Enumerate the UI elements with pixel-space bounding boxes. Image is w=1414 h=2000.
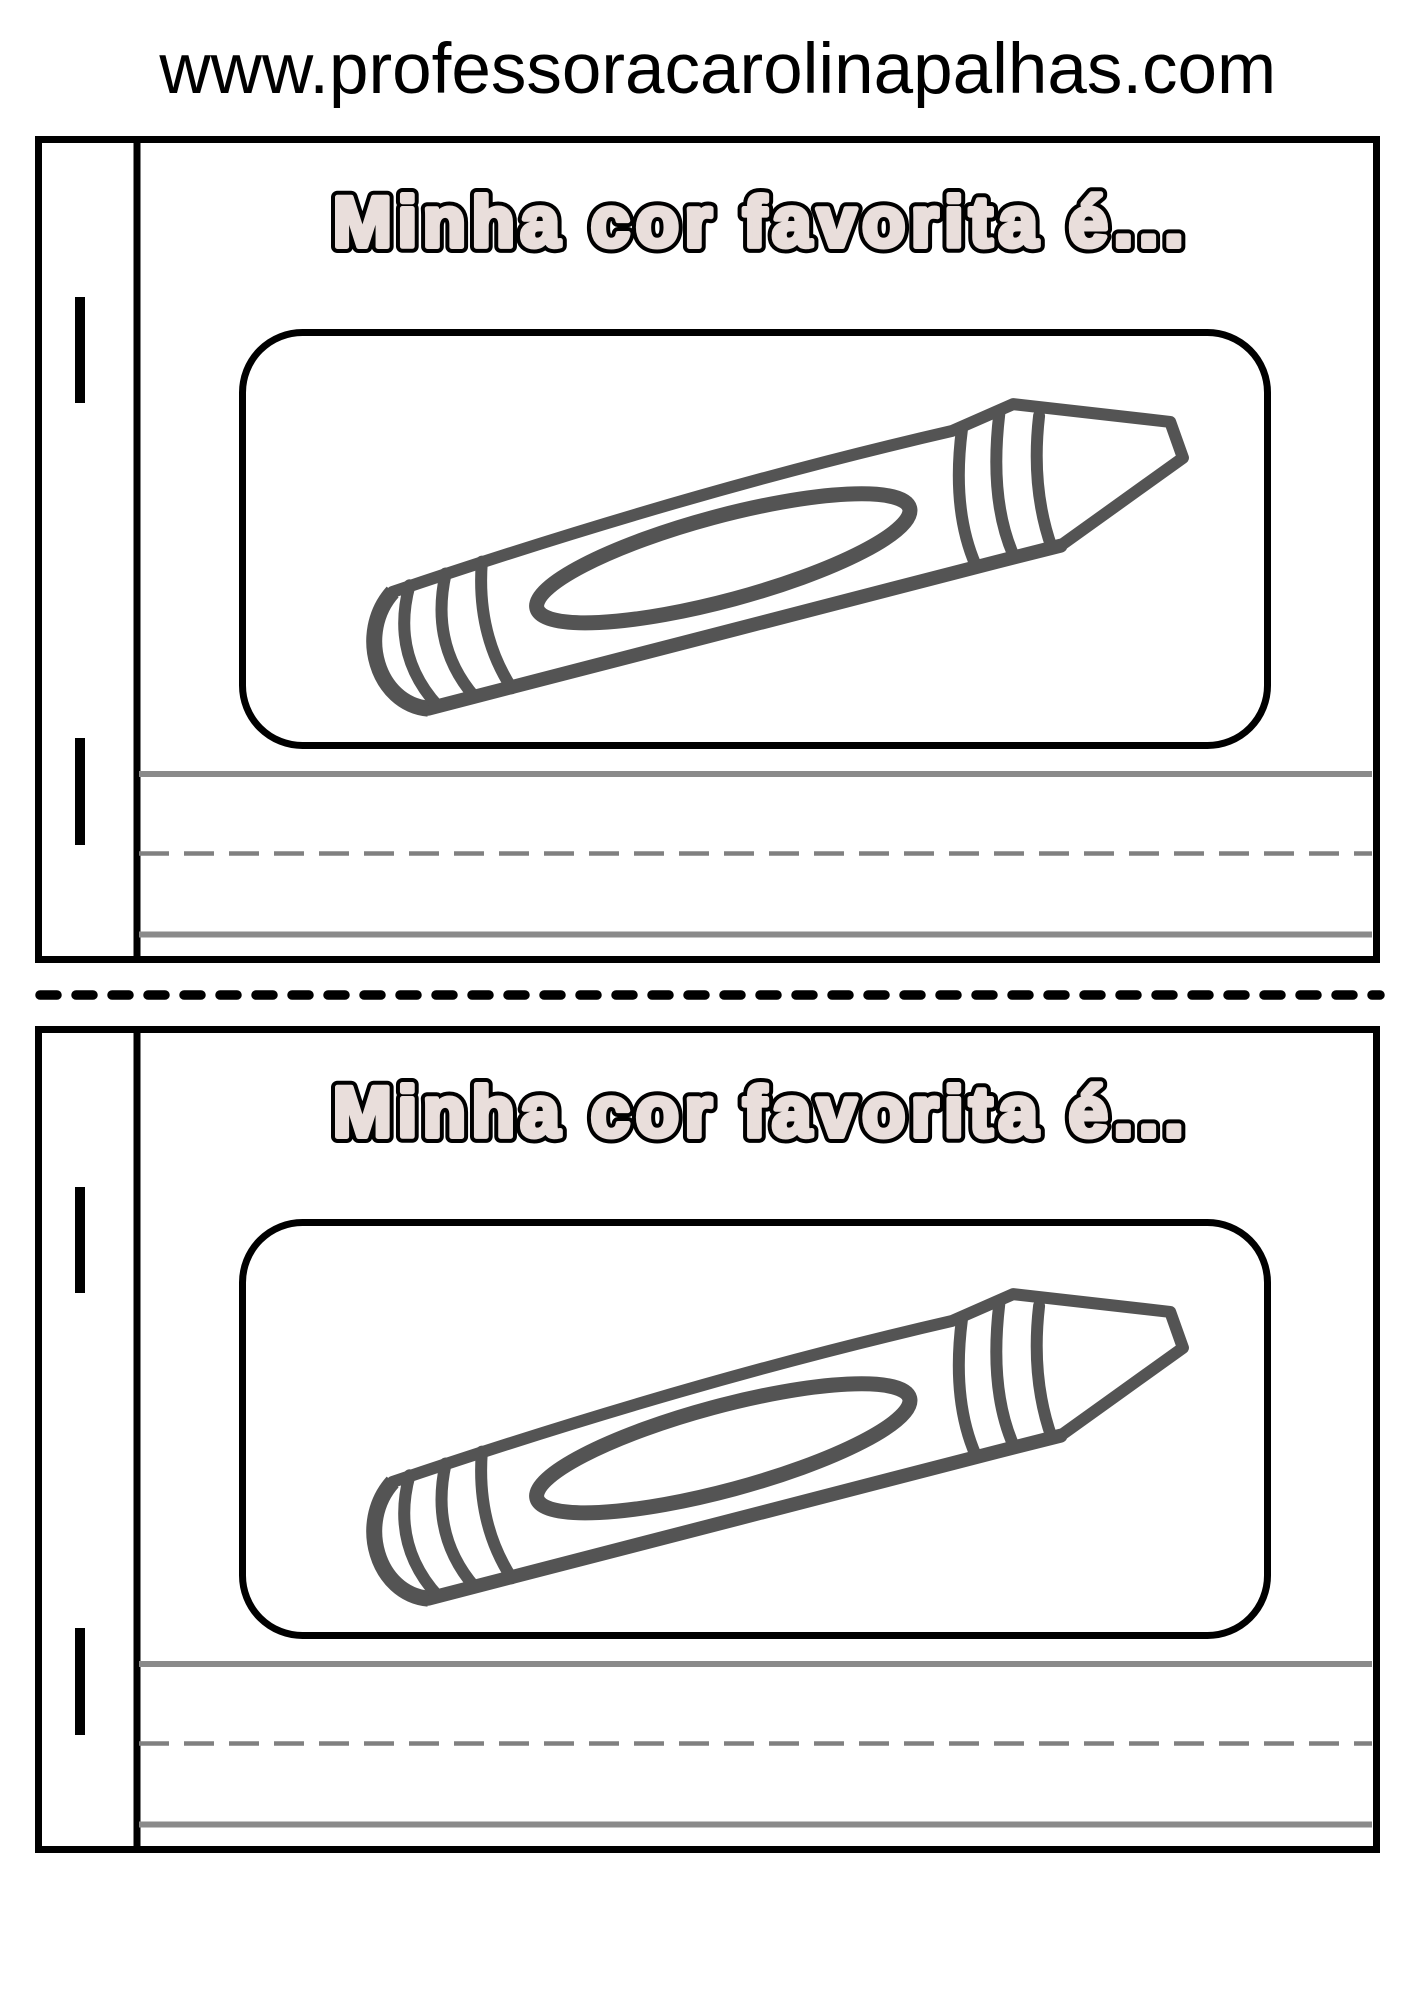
svg-text:www.professoracarolinapalhas.c: www.professoracarolinapalhas.com [158,30,1276,109]
svg-text:Minha cor favorita é...: Minha cor favorita é... [333,1074,1189,1153]
svg-text:Minha cor favorita é...: Minha cor favorita é... [333,184,1189,263]
